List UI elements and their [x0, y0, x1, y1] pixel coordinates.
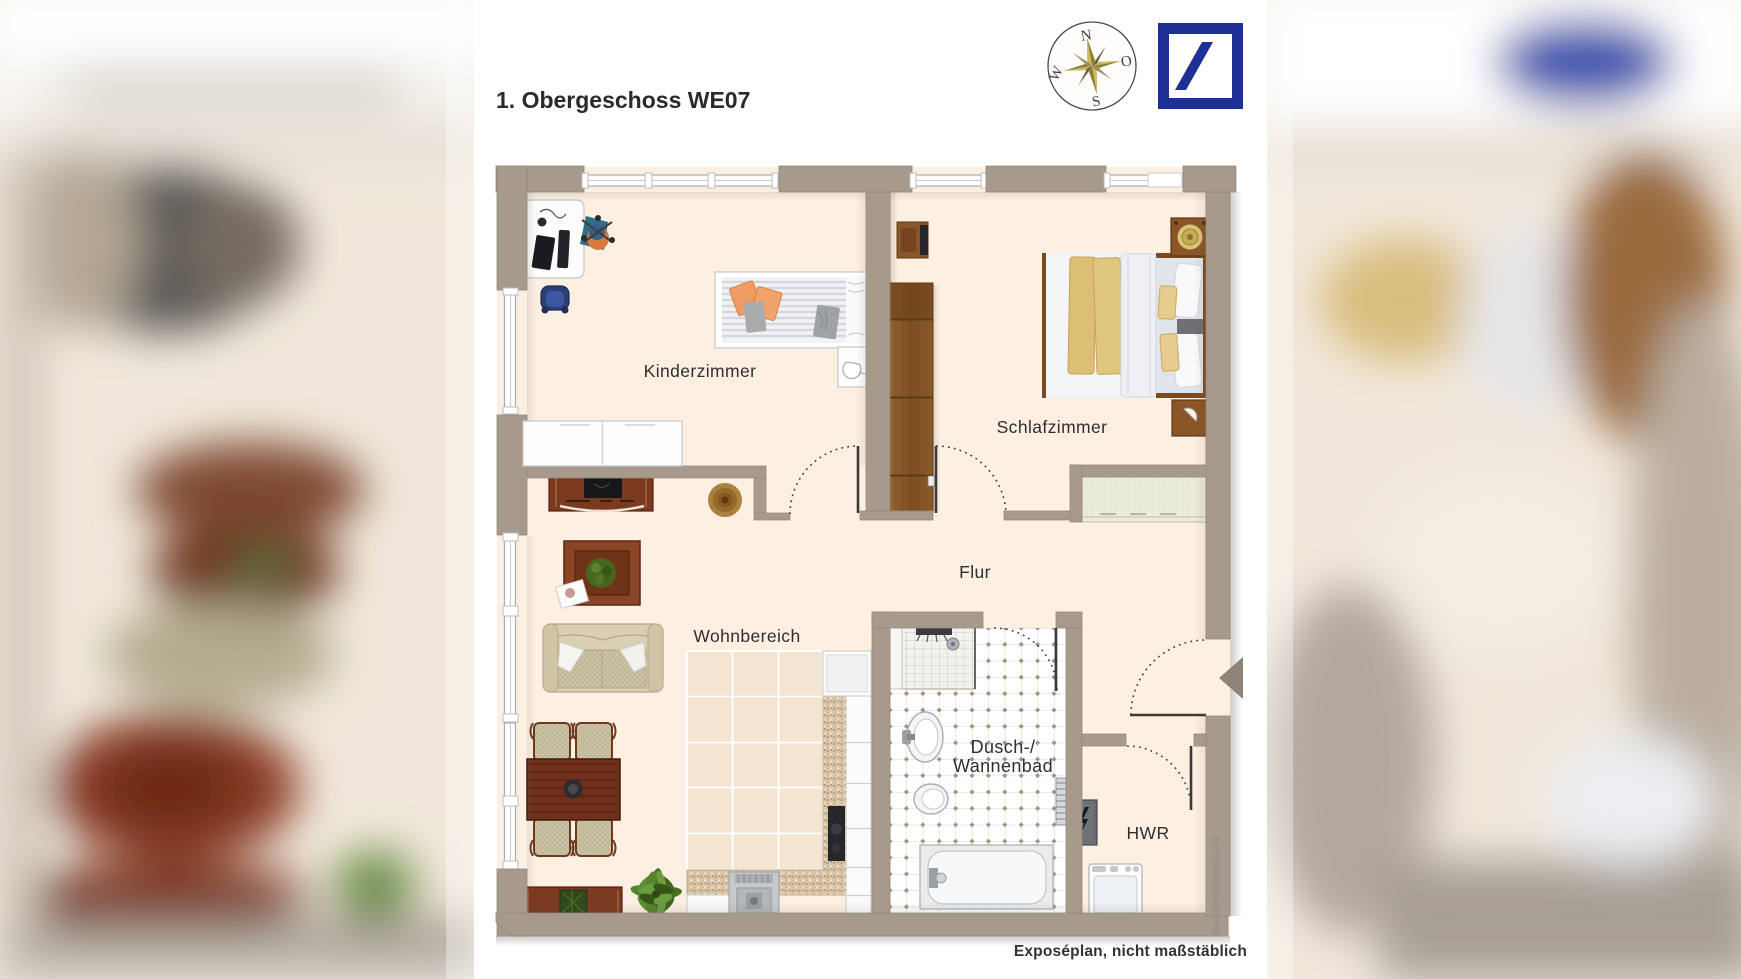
svg-text:Kinderzimmer: Kinderzimmer	[644, 361, 757, 381]
svg-text:HWR: HWR	[1127, 823, 1170, 843]
svg-text:Illustration©ImmoGrafik: Illustration©ImmoGrafik	[1211, 835, 1222, 935]
svg-text:Flur: Flur	[959, 562, 991, 582]
svg-text:1. Obergeschoss WE07: 1. Obergeschoss WE07	[496, 87, 750, 113]
svg-text:Dusch-/: Dusch-/	[971, 737, 1036, 757]
svg-text:Exposéplan, nicht maßstäblich: Exposéplan, nicht maßstäblich	[1014, 943, 1247, 960]
svg-text:Schlafzimmer: Schlafzimmer	[997, 417, 1108, 437]
svg-text:Wannenbad: Wannenbad	[953, 756, 1053, 776]
svg-text:Wohnbereich: Wohnbereich	[693, 626, 800, 646]
